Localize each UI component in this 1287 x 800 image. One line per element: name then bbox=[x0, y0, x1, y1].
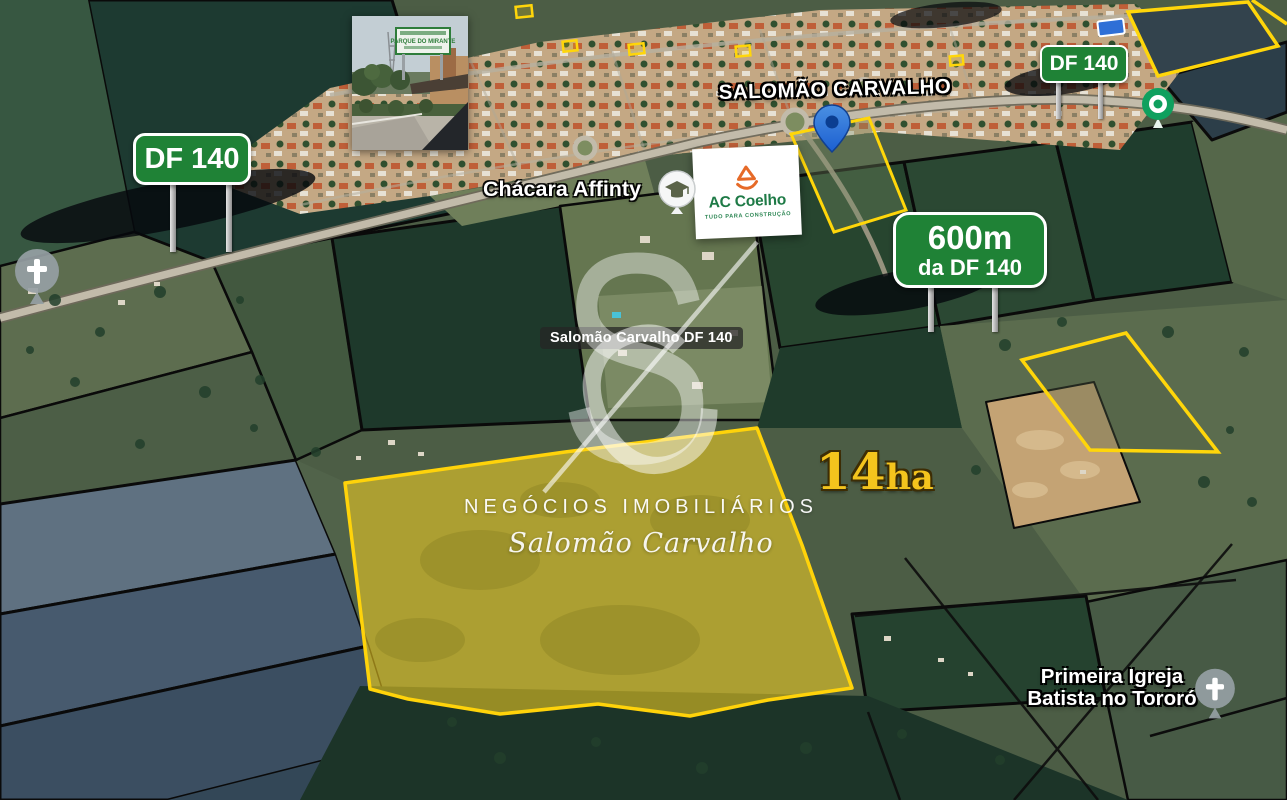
df140-sign-right-text: DF 140 bbox=[1050, 53, 1119, 75]
df140-sign-left-text: DF 140 bbox=[144, 144, 239, 174]
roundabout-pin-icon bbox=[1140, 86, 1176, 132]
ac-coelho-logo-icon bbox=[733, 164, 760, 191]
sign-post bbox=[1056, 77, 1061, 119]
church-label-line1: Primeira Igreja bbox=[1012, 666, 1212, 688]
ac-coelho-name: AC Coelho bbox=[708, 191, 786, 212]
ac-coelho-card: AC Coelho TUDO PARA CONSTRUÇÃO bbox=[692, 145, 802, 240]
chacara-affinty-label: Chácara Affinty bbox=[462, 177, 662, 202]
real-estate-map-image: S C PARQUE DO MIRANTE bbox=[0, 0, 1287, 800]
blue-location-pin-icon bbox=[813, 104, 851, 154]
church-pin-icon bbox=[1192, 666, 1238, 722]
area-unit: ha bbox=[886, 457, 934, 498]
education-pin-icon bbox=[658, 170, 696, 218]
church-label-line2: Batista no Tororó bbox=[1012, 688, 1212, 710]
watermark-signature-line: Salomão Carvalho bbox=[441, 528, 841, 559]
church-label: Primeira Igreja Batista no Tororó bbox=[1012, 666, 1212, 710]
photo-inset-scene: PARQUE DO MIRANTE bbox=[352, 16, 468, 150]
sign-post bbox=[170, 176, 176, 252]
watermark-company-line: NEGÓCIOS IMOBILIÁRIOS bbox=[441, 496, 841, 519]
df140-sign-left: DF 140 bbox=[133, 133, 251, 185]
sign-post bbox=[226, 176, 232, 252]
road-sign-blue bbox=[1097, 18, 1125, 36]
distance-sign-main: 600m bbox=[928, 221, 1012, 256]
sign-post bbox=[1098, 77, 1103, 119]
ac-coelho-tagline: TUDO PARA CONSTRUÇÃO bbox=[705, 211, 791, 221]
parcel-pill-label: Salomão Carvalho DF 140 bbox=[540, 327, 743, 349]
church-pin-icon bbox=[12, 246, 62, 308]
photo-inset: PARQUE DO MIRANTE bbox=[352, 16, 468, 150]
area-badge: 14ha bbox=[816, 442, 934, 501]
df140-sign-right: DF 140 bbox=[1040, 45, 1128, 83]
area-value: 14 bbox=[816, 442, 886, 501]
distance-sign-sub: da DF 140 bbox=[918, 256, 1022, 279]
photo-sign-text: PARQUE DO MIRANTE bbox=[391, 39, 456, 45]
distance-sign: 600m da DF 140 bbox=[893, 212, 1047, 288]
